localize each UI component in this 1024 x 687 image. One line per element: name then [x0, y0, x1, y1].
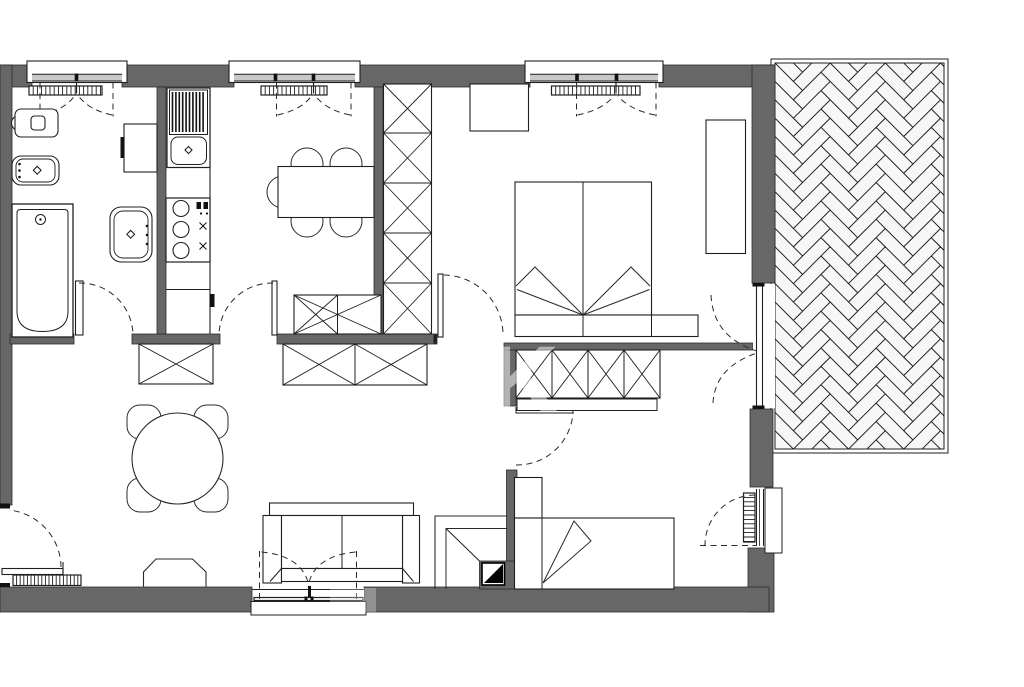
svg-text:K: K — [490, 327, 559, 433]
